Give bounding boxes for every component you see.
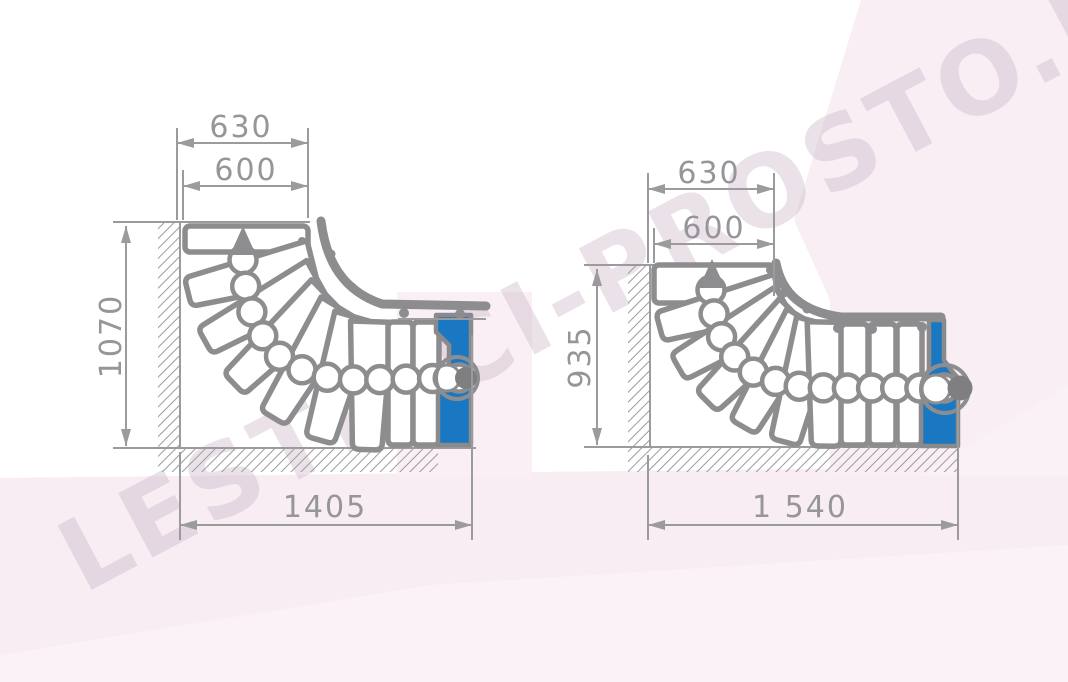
dimension-arrowhead [757, 239, 774, 249]
right-staircase-diagram: 630 600 935 1 540 [563, 156, 973, 540]
wall-hatch-right [628, 265, 650, 447]
chain-module [340, 366, 367, 393]
dimension-arrowhead [941, 520, 958, 530]
handrail-right [776, 263, 941, 317]
dimension-arrowhead [648, 520, 665, 530]
dimension-arrowhead [291, 138, 308, 148]
dimension-label-height-right: 935 [563, 325, 598, 388]
baluster-pin [455, 309, 465, 319]
dimension-label-height-left: 1070 [94, 294, 129, 378]
dimension-label-length-left: 1405 [283, 490, 367, 525]
dimension-arrowhead [291, 181, 308, 191]
baluster-pin [298, 237, 306, 245]
dimension-arrowhead [121, 226, 131, 243]
staircase-drawing-canvas: LESTNICI-PROSTO.RU [0, 0, 1068, 682]
floor-hatch-right [628, 447, 958, 472]
floor-hatch-left [158, 448, 438, 472]
dimension-arrowhead [654, 239, 671, 249]
dimension-arrowhead [648, 184, 665, 194]
dimension-label-tread-left: 600 [214, 153, 277, 188]
dimension-label-top-outer-left: 630 [209, 110, 272, 145]
dimension-arrowhead [592, 269, 602, 286]
dimension-arrowhead [180, 520, 197, 530]
chain-module [289, 356, 316, 383]
chain-module [393, 366, 420, 393]
technical-drawing: 630 600 1070 1405 [0, 0, 1068, 682]
dimension-arrowhead [592, 428, 602, 445]
chain-module [366, 366, 393, 393]
chain-module [314, 364, 341, 391]
handrail-left [321, 221, 486, 306]
left-staircase-diagram: 630 600 1070 1405 [94, 110, 486, 540]
dimension-label-tread-right: 600 [682, 211, 745, 246]
dimension-label-length-right: 1 540 [752, 490, 848, 525]
wall-hatch-left [158, 222, 180, 448]
chain-module [232, 273, 259, 300]
baluster-pin [917, 322, 927, 332]
dimension-arrowhead [183, 181, 200, 191]
dimension-arrowhead [177, 138, 194, 148]
dimension-arrowhead [455, 520, 472, 530]
baluster-pin [399, 308, 409, 318]
dimension-label-top-outer-right: 630 [677, 156, 740, 191]
dimension-arrowhead [757, 184, 774, 194]
baluster-pin [867, 324, 877, 334]
dimension-arrowhead [121, 429, 131, 446]
baluster-pin [833, 323, 843, 333]
